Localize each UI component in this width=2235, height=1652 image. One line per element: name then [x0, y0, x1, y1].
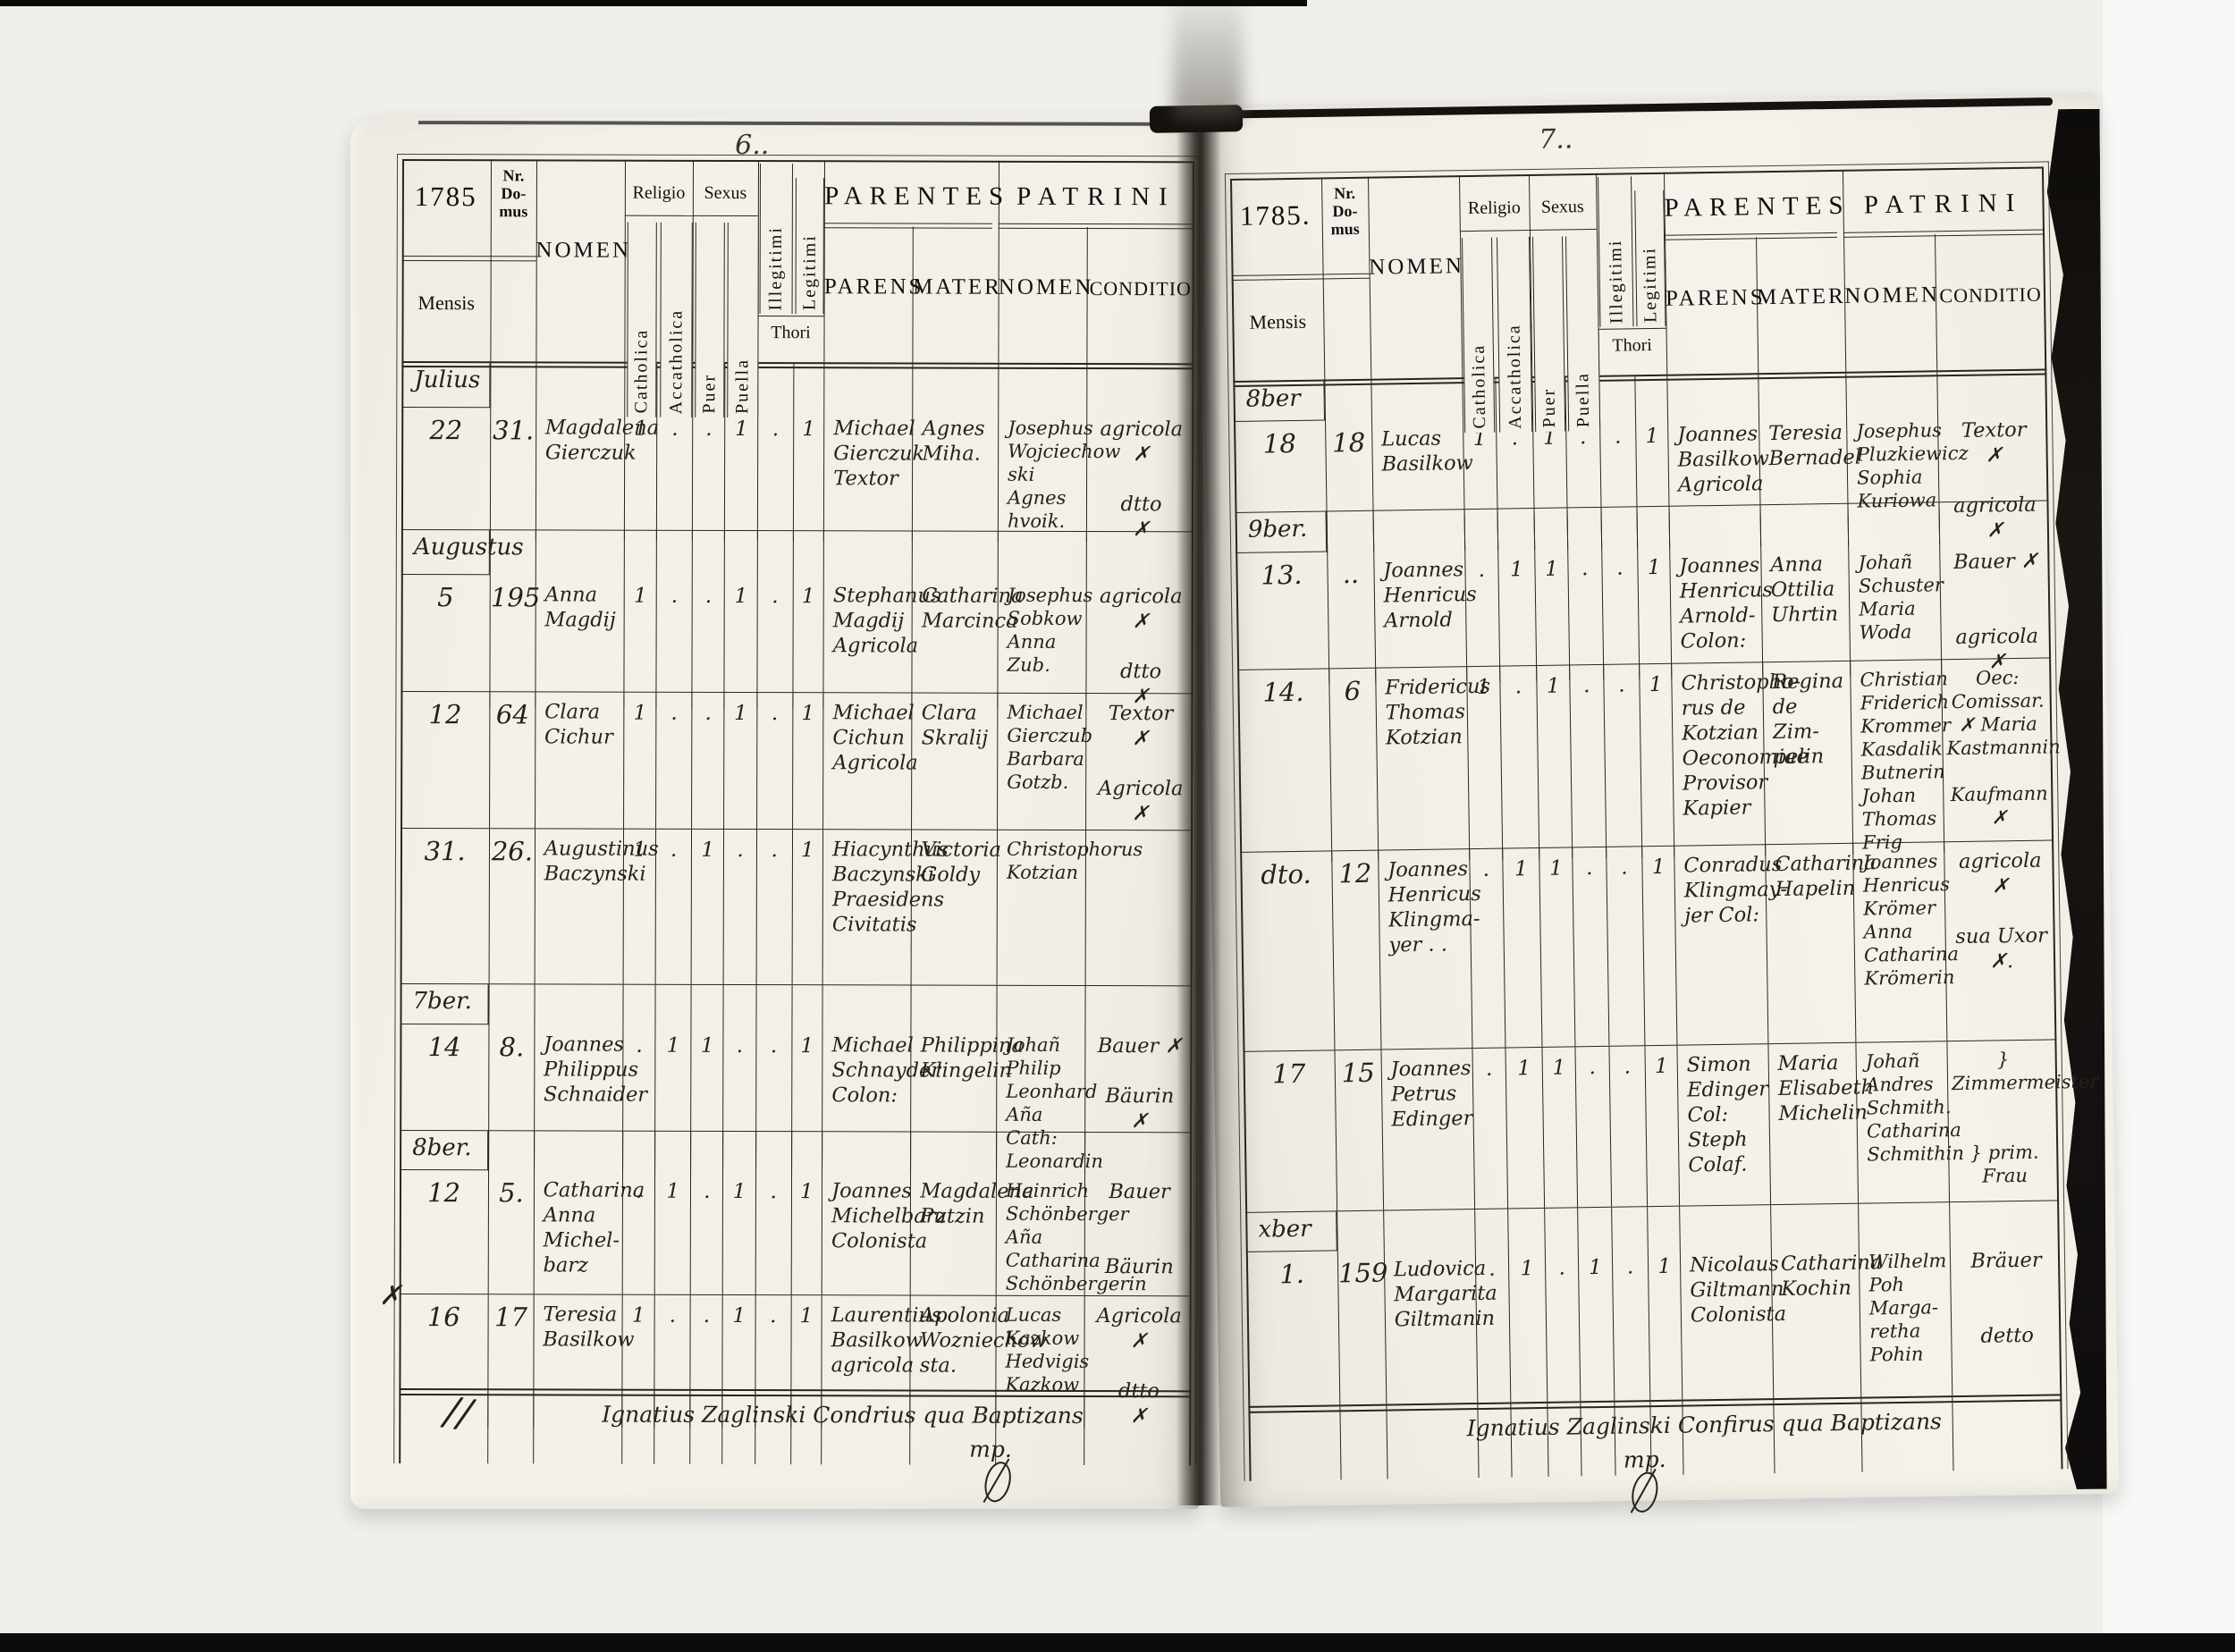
cell-patrini: Johañ Andres Schmith. Catharina Schmithi… [1856, 1041, 1950, 1202]
cell-day: 5 [401, 575, 490, 707]
cell-parens: Stephanus Magdij Agricola [823, 576, 913, 708]
puer-label: Puer [1532, 236, 1565, 431]
cell-mark-puer: . [692, 576, 725, 708]
cell-parens: Christopho- rus de Kotzian Oeconomiae Pr… [1671, 662, 1765, 856]
conditio-label: CONDITIO [1936, 282, 2045, 308]
month-strip: Julius [401, 363, 1193, 409]
cell-mark-illegitimi: . [1608, 1046, 1648, 1207]
baptizer-signature: Ignatius Zaglinski Condrius qua Baptizan… [526, 1401, 1160, 1429]
cell-day: dto. [1240, 851, 1334, 1050]
acatholica-label: Accatholica [1497, 237, 1533, 433]
cell-mark-puer: . [691, 693, 724, 829]
puella-label: Puella [727, 223, 758, 417]
month-strip: 7ber. [400, 983, 1192, 1026]
month-strip: 8ber. [400, 1130, 1192, 1172]
cell-mark-legitimi: 1 [1648, 1246, 1682, 1401]
cell-nr: 5. [488, 1170, 534, 1294]
cell-empty [823, 531, 912, 576]
cell-mark-illegitimi: . [757, 409, 793, 541]
cell-empty [755, 985, 791, 1025]
cell-patrini: Heinrich Schönberger Aña Catharina Schön… [996, 1172, 1085, 1295]
cell-mark-legitimi: 1 [790, 1171, 822, 1294]
cell-day: 12 [401, 692, 490, 828]
cell-mark-legitimi: 1 [1638, 547, 1672, 680]
cell-empty [822, 1132, 910, 1171]
cell-conditio: Bauer ✗ agricola ✗ [1939, 541, 2051, 675]
cell-empty [1324, 381, 1371, 421]
cell-mark-catholica: . [1472, 1049, 1507, 1209]
thori-label: Thori [757, 323, 823, 343]
page-number: 6.. [735, 130, 769, 161]
cell-patrini: Christian Friderich Krommer Kasdalik But… [1850, 660, 1944, 854]
cell-nr: 31. [490, 408, 536, 540]
scanner-background [2103, 0, 2235, 1652]
cell-empty [692, 531, 724, 576]
cell-day: 17 [1243, 1050, 1337, 1211]
year-label: 1785. [1230, 199, 1320, 232]
patrini-nomen-label: NOMEN [999, 275, 1087, 300]
cell-name: Anna Magdij [535, 575, 624, 707]
cell-empty [1936, 370, 2046, 411]
table-row: dto. 12 Joannes Henricus Klingma- yer . … [1240, 839, 2056, 1050]
cell-mark-acatholica: 1 [1502, 848, 1541, 1048]
cell-patrini: Joannes Henricus Krömer Anna Catharina K… [1852, 842, 1946, 1041]
scan-bottom-strip [0, 1633, 2235, 1652]
cell-empty [1848, 502, 1940, 544]
cell-mark-puer: 1 [691, 830, 724, 984]
cell-empty [536, 363, 624, 408]
month-label: 7ber. [400, 984, 488, 1024]
cell-empty [823, 364, 912, 409]
cell-mark-puella: 1 [723, 693, 756, 829]
header-line [824, 223, 992, 228]
cell-mark-puer: 1 [1534, 548, 1569, 681]
illegitimi-text: Illegitimi [766, 219, 787, 314]
table-row: 14 8. Joannes Philippus Schnaider . 1 1 … [400, 1024, 1192, 1132]
margin-x-mark: ✗ [379, 1280, 401, 1311]
cell-nr: .. [1327, 552, 1375, 685]
cell-empty [910, 1132, 996, 1171]
right-page-table: 7.. 1785. Nr. Do- mus Mensis NOMEN Relig… [1230, 167, 2063, 1481]
catholica-text: Catholica [631, 322, 652, 417]
mensis-label: Mensis [402, 291, 491, 315]
cell-empty [996, 1133, 1084, 1172]
mensis-label: Mensis [1232, 309, 1323, 334]
puer-text: Puer [699, 367, 720, 417]
cell-empty [1463, 510, 1497, 551]
parentes-label: PARENTES [1664, 191, 1836, 223]
cell-empty [536, 530, 624, 575]
left-page-table: 6.. 1785 Nr. Do- mus Mensis NOMEN Religi… [399, 159, 1194, 1465]
cell-mark-catholica: 1 [1466, 667, 1502, 861]
religio-label: Religio [625, 183, 693, 204]
cell-empty [490, 363, 536, 408]
cell-empty [1084, 1133, 1192, 1172]
cell-name: Catharina Anna Michel- barz [533, 1170, 622, 1294]
cell-mark-illegitimi: . [756, 693, 792, 829]
year-label: 1785 [402, 181, 490, 213]
cell-name: Joannes Henricus Klingma- yer . . [1378, 849, 1472, 1049]
cell-mark-acatholica: 1 [654, 1171, 690, 1294]
cell-mark-legitimi: 1 [792, 576, 823, 708]
cell-empty [1635, 376, 1667, 417]
cell-parens: Simon Edinger Col: Steph Colaf. [1676, 1044, 1770, 1205]
cell-name: Clara Cichur [535, 692, 624, 828]
cell-empty [490, 530, 536, 575]
parens-label: PARENS [1666, 285, 1757, 312]
header-line [625, 215, 693, 216]
table-row: 1. 159 Ludovica Margarita Giltmanin . 1 … [1246, 1240, 2062, 1405]
cell-parens: Michael Cichun Agricola [822, 693, 912, 829]
legitimi-text: Legitimi [799, 227, 820, 314]
table-row: 12 64 Clara Cichur 1 . . 1 . 1 Michael C… [401, 691, 1193, 830]
cell-empty [757, 531, 793, 576]
cell-empty [1758, 374, 1846, 414]
cell-conditio: Bauer Bäurin [1084, 1172, 1192, 1295]
cell-mark-legitimi: 1 [791, 830, 822, 984]
cell-mater: Anna Ottilia Uhrtin [1760, 544, 1850, 678]
cell-conditio: Oec: Comissar. ✗ Maria Kastmannin Kaufma… [1941, 658, 2054, 853]
cell-name: Joannes Henricus Arnold [1373, 550, 1466, 683]
nomen-label: NOMEN [536, 238, 624, 263]
cell-patrini: Wilhelm Poh Marga- retha Pohin [1859, 1242, 1952, 1396]
cell-empty [1577, 1208, 1611, 1248]
nomen-label: NOMEN [1369, 254, 1460, 281]
cell-mater: Victoria Goldy [911, 830, 997, 984]
cell-mater: Catharina Marcinca [912, 576, 998, 708]
patrini-nomen-label: NOMEN [1844, 282, 1936, 309]
cell-mark-legitimi: 1 [1642, 847, 1677, 1046]
acatholica-text: Accatholica [1504, 316, 1526, 433]
table-row: 31. 26. Augustinus Baczynski 1 . 1 . . 1… [401, 828, 1193, 985]
mater-label: MATER [1757, 284, 1845, 310]
cell-day: 22 [401, 408, 491, 540]
cell-mark-acatholica: 1 [1497, 549, 1536, 682]
cell-empty [1383, 1209, 1475, 1251]
legitimi-label: Legitimi [796, 178, 825, 314]
cell-empty [1759, 504, 1848, 545]
cell-parens: Hiacynthus Baczynski Praesidens Civitati… [822, 830, 912, 984]
scanned-register-spread: ✗ // 6.. 1785 Nr. Do- mus Mensis NOMEN [0, 0, 2235, 1652]
cell-patrini: Christophorus Kotzian [997, 830, 1086, 985]
cell-name: Augustinus Baczynski [534, 829, 623, 983]
cell-empty [793, 364, 824, 409]
cell-nr: 64 [489, 692, 535, 828]
header-line [757, 316, 823, 316]
mater-label: MATER [913, 274, 999, 299]
month-label: Julius [401, 363, 490, 408]
cell-nr: 15 [1334, 1050, 1383, 1211]
cell-empty [1474, 1209, 1508, 1250]
cell-empty [690, 1132, 722, 1171]
cell-empty [1497, 509, 1534, 550]
parens-label: PARENS [824, 274, 913, 299]
cell-empty [1938, 501, 2048, 543]
cell-mark-puella: . [1567, 548, 1602, 681]
cell-mark-illegitimi: . [1606, 847, 1645, 1046]
legitimi-label: Legitimi [1635, 190, 1666, 326]
cell-empty [1248, 1406, 1340, 1481]
table-row: 13. .. Joannes Henricus Arnold . 1 1 . .… [1236, 541, 2051, 669]
cell-empty [656, 531, 692, 576]
cell-mark-illegitimi: . [755, 830, 791, 984]
cell-empty [1371, 379, 1463, 420]
cell-mark-acatholica: . [655, 693, 691, 829]
cell-empty [1637, 507, 1669, 548]
cell-mark-catholica: . [1464, 550, 1499, 683]
cell-day: 1. [1246, 1251, 1339, 1405]
nr-domus-label: Nr. Do- mus [491, 166, 536, 220]
cell-nr: 195 [490, 575, 536, 707]
cell-empty [1544, 1208, 1578, 1248]
cell-empty [724, 531, 756, 576]
cell-mark-puer: . [1545, 1247, 1581, 1402]
cell-mark-puella: . [1575, 1047, 1611, 1208]
cell-mark-legitimi: 1 [792, 409, 823, 541]
puella-text: Puella [1573, 365, 1594, 431]
cell-mark-legitimi: 1 [1645, 1046, 1679, 1207]
cell-mark-puer: 1 [1541, 1047, 1577, 1208]
cell-empty [534, 1131, 622, 1170]
cell-empty [622, 1132, 654, 1171]
header-line [999, 223, 1194, 230]
cell-day: 12 [400, 1170, 489, 1294]
cell-empty [1567, 508, 1601, 549]
table-row: 14. 6 Fridericus Thomas Kotzian 1 . 1 . … [1237, 657, 2054, 851]
header-line [693, 215, 758, 216]
cell-mark-catholica: . [1474, 1249, 1510, 1403]
cell-mark-legitimi: 1 [792, 693, 823, 829]
cell-empty [691, 985, 723, 1025]
header-line [1843, 229, 2045, 237]
cell-mark-illegitimi: . [1601, 547, 1640, 680]
cell-empty [1648, 1207, 1680, 1247]
table-header: 1785. Nr. Do- mus Mensis NOMEN Religio S… [1230, 167, 2046, 383]
header-line [402, 256, 536, 261]
cell-patrini: Josephus Wojciechow ski Agnes hvoik. [998, 409, 1087, 542]
cell-mark-acatholica: 1 [1508, 1248, 1547, 1403]
cell-empty [534, 984, 622, 1024]
table-header: 1785 Nr. Do- mus Mensis NOMEN Religio Se… [401, 159, 1194, 365]
cell-mark-puer: . [692, 409, 725, 541]
cell-empty [1679, 1205, 1771, 1246]
cell-mark-puella: 1 [722, 1171, 755, 1294]
cell-conditio: agricola ✗ dtto ✗ [1086, 577, 1193, 709]
cell-mark-catholica: . [622, 1171, 655, 1294]
acatholica-label: Accatholica [660, 223, 693, 417]
cell-conditio: Textor ✗ Agricola ✗ [1085, 694, 1193, 830]
cell-parens: Joannes Henricus Arnold- Colon: [1669, 545, 1762, 678]
table-footer: Ignatius Zaglinski Confirus qua Baptizan… [1248, 1394, 2062, 1480]
cell-day: 14. [1237, 669, 1331, 863]
cell-empty [722, 1132, 755, 1171]
cell-empty [911, 985, 997, 1025]
puella-text: Puella [732, 351, 753, 417]
table-row: 18 18 Lucas Basilkow 1 . 1 . . 1 Joannes… [1234, 409, 2048, 511]
month-label: 9ber. [1236, 511, 1328, 553]
month-label: xber [1245, 1211, 1337, 1252]
cell-mater: Catharina Hapelin [1765, 844, 1856, 1043]
cell-parens: Conradus Klingmay- jer Col: [1674, 845, 1767, 1044]
cell-parens: Nicolaus Giltmann Colonista [1680, 1244, 1773, 1399]
cell-empty [1086, 532, 1193, 577]
cell-nr: 159 [1337, 1251, 1386, 1405]
month-label: 8ber [1233, 381, 1325, 422]
cell-empty [1845, 372, 1937, 413]
cell-mark-puella: . [1572, 847, 1608, 1047]
cell-mark-acatholica: 1 [1505, 1048, 1544, 1209]
parentes-label: PARENTES [824, 181, 992, 211]
cell-empty [1770, 1204, 1859, 1244]
cell-empty [723, 985, 755, 1025]
cell-mater: Maria Elisabeth Michelin [1767, 1043, 1858, 1204]
cell-empty [1949, 1201, 2059, 1242]
cell-nr: 6 [1328, 669, 1378, 863]
cell-empty [1598, 376, 1636, 417]
table-row: 5 195 Anna Magdij 1 . . 1 . 1 Stephanus … [401, 575, 1193, 693]
cell-empty [757, 364, 793, 409]
page-number: 7.. [1539, 123, 1573, 156]
cell-empty [913, 364, 999, 409]
cell-empty [488, 1131, 534, 1170]
cell-mark-puer: 1 [1539, 847, 1575, 1047]
table-row: 12 5. Catharina Anna Michel- barz . 1 . … [400, 1170, 1192, 1295]
cell-empty [399, 1390, 487, 1463]
cell-empty [1507, 1209, 1545, 1249]
cell-empty [1337, 1211, 1384, 1252]
scan-top-strip [0, 0, 1307, 6]
cell-mark-puella: 1 [724, 409, 757, 541]
sexus-label: Sexus [693, 183, 758, 204]
illegitimi-text: Illegitimi [1605, 232, 1627, 327]
legitimi-text: Legitimi [1640, 240, 1661, 326]
cell-mark-puella: . [1569, 665, 1605, 859]
cell-parens: Michael Gierczuk Textor [823, 409, 913, 541]
cell-empty [1085, 986, 1193, 1026]
illegitimi-label: Illegitimi [760, 164, 793, 314]
cell-empty [655, 985, 691, 1025]
month-label: Augustus [401, 530, 490, 575]
cell-conditio [1085, 830, 1193, 985]
acatholica-text: Accatholica [666, 301, 687, 417]
cell-mark-acatholica: . [1499, 666, 1539, 860]
catholica-label: Catholica [1462, 238, 1495, 433]
cell-empty [997, 986, 1085, 1026]
cell-mark-illegitimi: . [755, 1171, 790, 1294]
cell-mater: Regina de Zim- pelin [1762, 662, 1852, 855]
cell-day: 31. [401, 829, 490, 983]
cell-name: Fridericus Thomas Kotzian [1375, 667, 1469, 861]
cell-empty [912, 531, 998, 576]
signature-mp: mp. [969, 1437, 1012, 1462]
cell-name: Magdalena Gierczuk [536, 408, 625, 540]
thori-label: Thori [1598, 335, 1666, 357]
cell-empty [1600, 507, 1638, 548]
cell-mark-puella: . [723, 830, 756, 984]
cell-mark-acatholica: . [656, 576, 692, 708]
cell-mater: Clara Skralij [911, 693, 997, 829]
header-line [1232, 274, 1370, 281]
cell-nr: 12 [1331, 851, 1380, 1050]
cell-mark-puer: . [690, 1171, 723, 1294]
month-strip: Augustus [401, 529, 1193, 577]
table-footer: Ignatius Zaglinski Condrius qua Baptizan… [399, 1388, 1191, 1465]
cell-empty [1326, 511, 1373, 552]
cell-empty [998, 532, 1086, 577]
puer-label: Puer [695, 223, 725, 417]
table-row: 17 15 Joannes Petrus Edinger . 1 1 . . 1… [1243, 1039, 2059, 1211]
patrini-label: PATRINI [1843, 188, 2044, 220]
puella-label: Puella [1565, 236, 1600, 432]
cell-name: Ludovica Margarita Giltmanin [1384, 1249, 1477, 1403]
cell-mark-illegitimi: . [756, 576, 792, 708]
header-line [1530, 229, 1597, 231]
cell-mark-illegitimi: . [1603, 664, 1642, 858]
cell-empty [792, 531, 823, 576]
cell-mark-acatholica: . [655, 830, 691, 984]
cell-name: Joannes Petrus Edinger [1380, 1049, 1474, 1209]
cell-mater: Magdalena Putzin [910, 1171, 996, 1294]
cell-empty [822, 985, 911, 1025]
cell-empty [791, 1132, 822, 1171]
cell-mark-puer: 1 [1536, 665, 1572, 859]
cell-mark-catholica: 1 [623, 576, 656, 708]
cell-conditio: } Zimmermeister } prim. Frau [1946, 1040, 2058, 1201]
month-label: 8ber. [400, 1131, 488, 1170]
cell-mater: Agnes Miha. [912, 409, 998, 541]
cell-empty [1533, 508, 1567, 549]
cell-conditio: Bräuer detto [1950, 1240, 2062, 1395]
header-line [1665, 232, 1837, 240]
catholica-text: Catholica [1469, 337, 1491, 433]
cell-empty [998, 365, 1086, 409]
table-row: 22 31. Magdalena Gierczuk 1 . . 1 . 1 Mi… [401, 408, 1193, 531]
cell-mater: Catharina Kochin [1771, 1243, 1861, 1398]
signature-mp: mp. [1624, 1446, 1666, 1473]
cell-empty [1372, 510, 1464, 552]
cell-patrini: Michael Gierczub Barbara Gotzb. [997, 694, 1086, 830]
cell-empty [1611, 1207, 1649, 1247]
header-line [1460, 230, 1530, 232]
religio-label: Religio [1459, 198, 1530, 219]
cell-empty [654, 1132, 690, 1171]
table-row: 16 17 Teresia Basilkow 1 . . 1 . 1 Laure… [399, 1294, 1191, 1390]
conditio-label: CONDITIO [1087, 277, 1194, 300]
cell-mark-catholica: 1 [624, 409, 657, 541]
cell-nr: 26. [489, 829, 535, 983]
nr-domus-label: Nr. Do- mus [1321, 184, 1369, 239]
cell-mark-catholica: 1 [623, 830, 656, 984]
cell-mark-puella: 1 [1578, 1247, 1614, 1402]
cell-empty [1858, 1202, 1950, 1243]
cell-mark-illegitimi: . [1611, 1246, 1649, 1401]
cell-empty [624, 531, 656, 576]
cell-empty [791, 985, 822, 1025]
patrini-label: PATRINI [999, 182, 1194, 213]
cell-mark-puella: 1 [724, 576, 757, 708]
cell-patrini: Johañ Schuster Maria Woda [1848, 543, 1941, 676]
cell-parens: Joannes Michelbarz Colonista [822, 1171, 911, 1294]
cell-mark-catholica: . [1469, 849, 1505, 1049]
puer-text: Puer [1539, 381, 1561, 432]
cell-empty [489, 984, 535, 1024]
sexus-label: Sexus [1529, 197, 1596, 218]
cell-mark-catholica: 1 [623, 693, 656, 829]
cell-day: 13. [1236, 552, 1328, 685]
cell-empty [1087, 365, 1194, 409]
cell-conditio: agricola ✗ sua Uxor ✗. [1944, 840, 2056, 1041]
cell-empty [1668, 505, 1760, 547]
